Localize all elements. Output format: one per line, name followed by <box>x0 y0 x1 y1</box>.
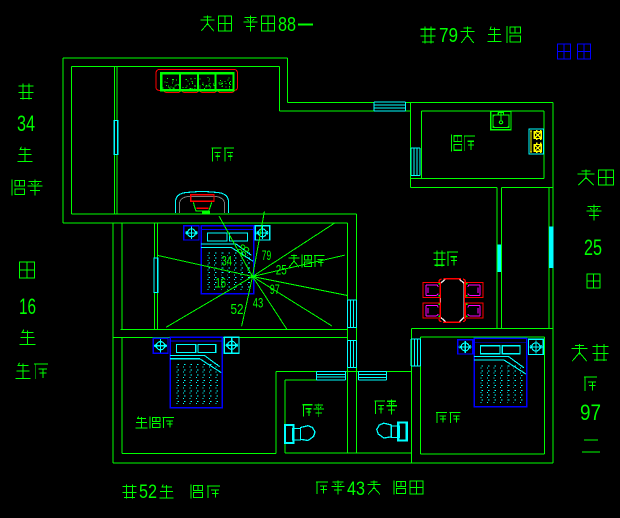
svg-text:52: 52 <box>139 482 157 503</box>
svg-text:34: 34 <box>222 253 233 269</box>
svg-text:79: 79 <box>262 247 272 263</box>
svg-text:25: 25 <box>584 235 602 260</box>
svg-text:16: 16 <box>19 294 36 319</box>
svg-text:79: 79 <box>439 25 458 47</box>
svg-text:16: 16 <box>216 275 227 291</box>
svg-text:88: 88 <box>278 14 296 36</box>
svg-text:34: 34 <box>17 111 35 136</box>
svg-text:43: 43 <box>253 295 264 311</box>
svg-text:43: 43 <box>347 479 365 500</box>
svg-text:52: 52 <box>231 301 244 318</box>
svg-text:97: 97 <box>580 400 601 425</box>
svg-text:97: 97 <box>270 281 280 297</box>
svg-text:25: 25 <box>276 262 287 278</box>
